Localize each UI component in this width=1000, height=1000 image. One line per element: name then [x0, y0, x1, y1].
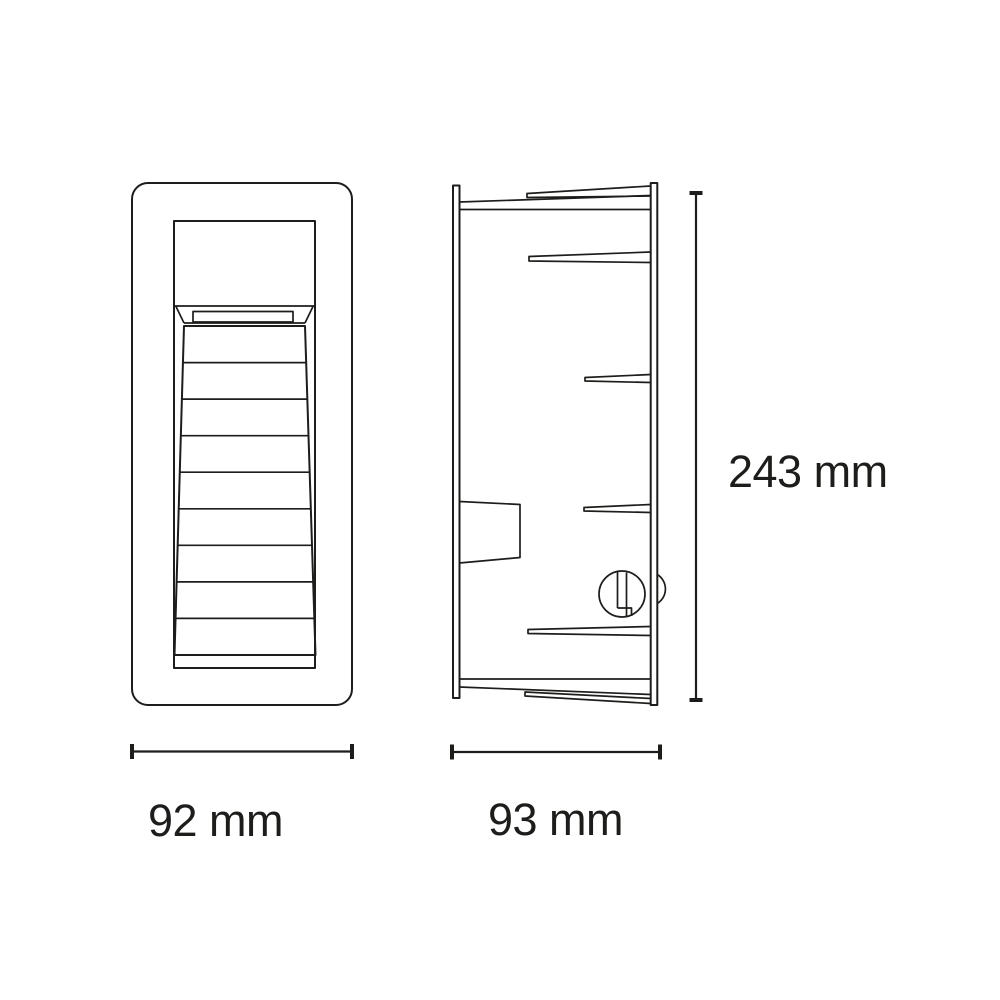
mounting-fin: [585, 375, 651, 383]
inner-frame: [174, 221, 315, 668]
fixing-screw: [599, 571, 645, 617]
dimension-label-side-depth: 93 mm: [488, 794, 623, 845]
dimension-label-height: 243 mm: [728, 446, 888, 497]
screw-slot-step: [618, 608, 632, 616]
mounting-fin: [528, 627, 651, 636]
mounting-fin: [529, 252, 651, 263]
dimension-height: 243 mm: [690, 193, 888, 700]
front-flange: [453, 186, 460, 699]
cable-gland-box: [460, 502, 521, 564]
screw-boss-bulge: [657, 575, 665, 604]
mounting-fin: [584, 505, 651, 513]
dimension-label-front-width: 92 mm: [148, 795, 283, 846]
technical-drawing: 92 mm 93 mm 243 mm: [0, 0, 1000, 1000]
mounting-fins: [525, 186, 651, 704]
mounting-fin: [527, 186, 651, 198]
recess-bevel-left: [176, 307, 184, 324]
front-view: [132, 183, 352, 705]
recess-bevel-right: [305, 307, 313, 324]
back-wall: [651, 183, 658, 705]
dimension-front-width: 92 mm: [132, 744, 352, 846]
louver-slats: [176, 363, 315, 619]
louver-panel: [175, 326, 316, 655]
dimension-side-depth: 93 mm: [452, 745, 660, 846]
drawing-canvas: 92 mm 93 mm 243 mm: [0, 0, 1000, 1000]
screw-head-circle: [599, 571, 645, 617]
lamp-slot: [193, 312, 293, 323]
faceplate-outline: [132, 183, 352, 705]
side-view: [453, 183, 665, 705]
